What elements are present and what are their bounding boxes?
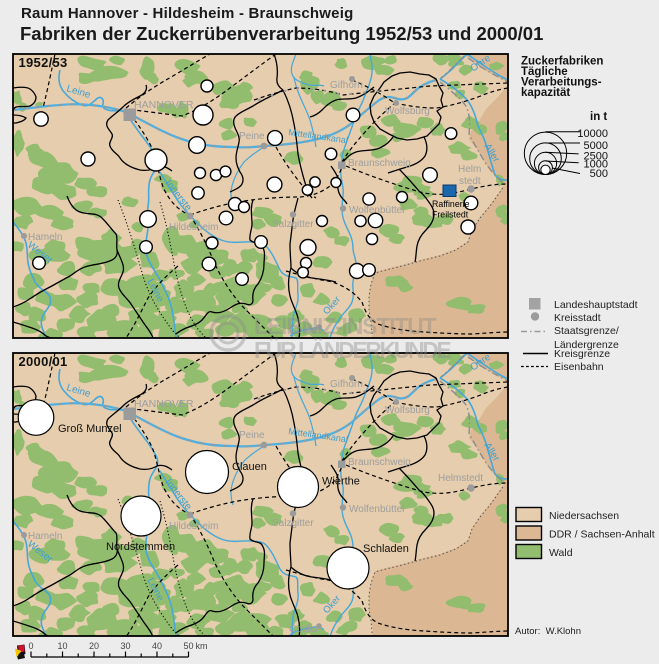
svg-text:Helm: Helm xyxy=(458,164,481,175)
svg-text:Freilstedt: Freilstedt xyxy=(432,210,469,220)
svg-text:Helmstedt: Helmstedt xyxy=(438,473,483,484)
svg-text:2000/01: 2000/01 xyxy=(19,354,68,369)
svg-text:50: 50 xyxy=(183,641,193,651)
svg-text:Staatsgrenze/: Staatsgrenze/ xyxy=(554,325,619,337)
svg-text:HANNOVER: HANNOVER xyxy=(134,99,194,111)
svg-text:Kreisstadt: Kreisstadt xyxy=(554,312,601,324)
svg-text:Kreisgrenze: Kreisgrenze xyxy=(554,348,610,360)
svg-text:Salzgitter: Salzgitter xyxy=(272,219,314,230)
svg-text:HANNOVER: HANNOVER xyxy=(134,398,194,410)
svg-text:km: km xyxy=(196,641,208,651)
svg-text:Eisenbahn: Eisenbahn xyxy=(554,361,604,373)
svg-text:40: 40 xyxy=(152,641,162,651)
svg-text:10000: 10000 xyxy=(577,128,608,140)
svg-text:Wald: Wald xyxy=(549,547,573,559)
svg-text:Wolfsburg: Wolfsburg xyxy=(385,405,430,416)
svg-text:Wolfsburg: Wolfsburg xyxy=(385,106,430,117)
svg-text:20: 20 xyxy=(89,641,99,651)
svg-text:Gifhorn: Gifhorn xyxy=(330,379,363,390)
svg-text:1952/53: 1952/53 xyxy=(19,55,68,70)
svg-text:LEIBNIZ-INSTITUT: LEIBNIZ-INSTITUT xyxy=(254,313,437,339)
svg-text:Hildesheim: Hildesheim xyxy=(169,222,218,233)
svg-text:FÜR LÄNDERKUNDE: FÜR LÄNDERKUNDE xyxy=(254,337,451,363)
svg-text:Gifhorn: Gifhorn xyxy=(330,80,363,91)
svg-text:Raffinerie: Raffinerie xyxy=(432,199,470,209)
svg-text:Fabriken der Zuckerrübenverarb: Fabriken der Zuckerrübenverarbeitung 195… xyxy=(20,23,543,44)
svg-text:Autor: W.Klohn: Autor: W.Klohn xyxy=(515,626,581,637)
svg-text:DDR / Sachsen-Anhalt: DDR / Sachsen-Anhalt xyxy=(549,529,655,541)
svg-text:0: 0 xyxy=(28,641,33,651)
svg-text:Braunschweig: Braunschweig xyxy=(348,457,411,468)
svg-text:Schladen: Schladen xyxy=(363,543,409,555)
svg-text:Raum Hannover - Hildesheim - B: Raum Hannover - Hildesheim - Braunschwei… xyxy=(21,5,353,22)
svg-text:Clauen: Clauen xyxy=(232,461,267,473)
svg-text:Nordstemmen: Nordstemmen xyxy=(106,541,175,553)
svg-text:Salzgitter: Salzgitter xyxy=(272,518,314,529)
svg-text:kapazität: kapazität xyxy=(521,87,570,99)
svg-text:30: 30 xyxy=(120,641,130,651)
svg-text:Wolfenbüttel: Wolfenbüttel xyxy=(349,504,404,515)
svg-text:Niedersachsen: Niedersachsen xyxy=(549,510,619,522)
svg-text:Peine: Peine xyxy=(239,131,265,142)
svg-text:Wierthe: Wierthe xyxy=(322,476,360,488)
svg-text:stedt: stedt xyxy=(459,176,481,187)
svg-text:Braunschweig: Braunschweig xyxy=(348,158,411,169)
svg-text:Groß Munzel: Groß Munzel xyxy=(58,423,122,435)
svg-text:Goslar: Goslar xyxy=(289,624,319,635)
svg-text:Landeshauptstadt: Landeshauptstadt xyxy=(554,299,638,311)
svg-text:500: 500 xyxy=(590,168,608,180)
svg-text:Peine: Peine xyxy=(239,430,265,441)
svg-text:in t: in t xyxy=(590,111,607,123)
svg-text:Hildesheim: Hildesheim xyxy=(169,521,218,532)
svg-text:10: 10 xyxy=(57,641,67,651)
